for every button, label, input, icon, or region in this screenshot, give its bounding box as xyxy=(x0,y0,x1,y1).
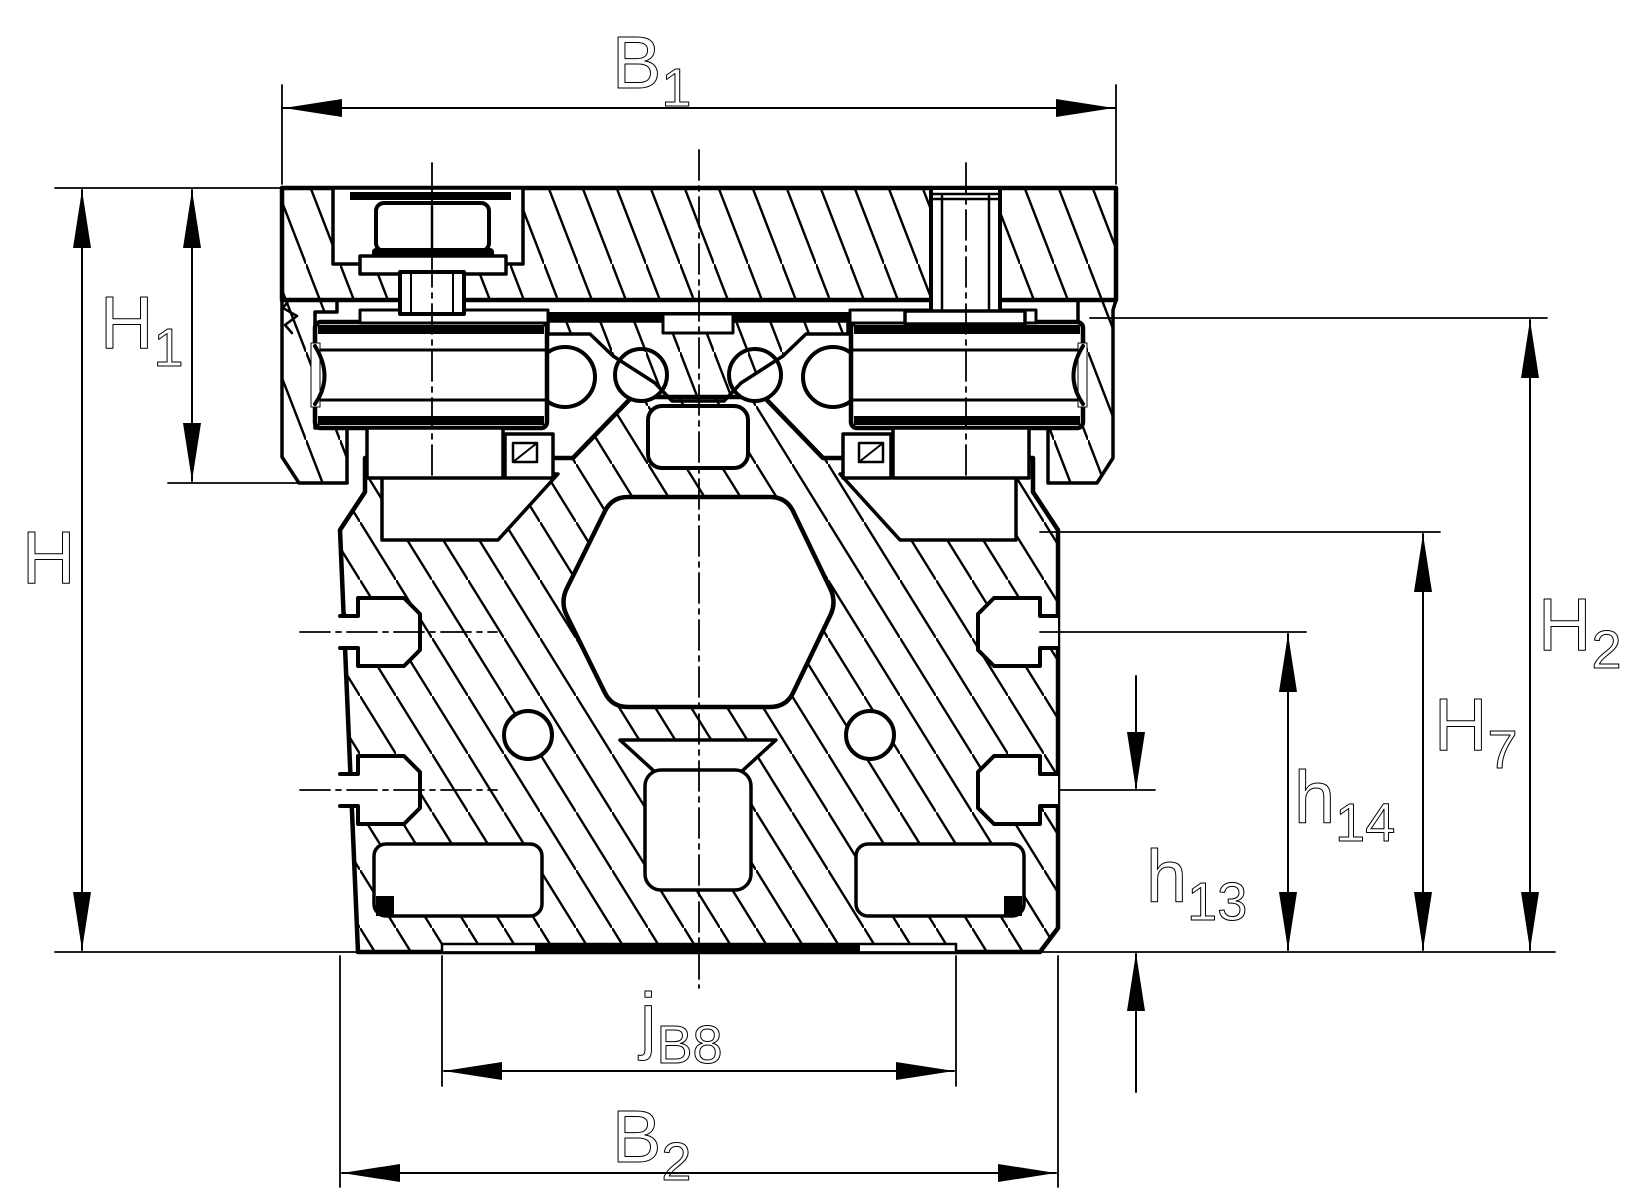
left-foot-slot xyxy=(376,896,394,916)
left-support-block xyxy=(367,428,503,478)
label-h13: h13 xyxy=(1146,835,1247,932)
right-round-bore xyxy=(846,711,894,759)
label-B1: B1 xyxy=(612,21,691,118)
dimension-h13: h13 xyxy=(1060,676,1247,1092)
label-H7: H7 xyxy=(1434,683,1518,780)
bottom-center-cavity xyxy=(645,770,751,890)
platen-center-notch xyxy=(663,314,733,333)
label-B2: B2 xyxy=(612,1095,691,1192)
pocket-washer-bar xyxy=(350,192,511,200)
dimension-H7: H7 xyxy=(1040,532,1518,950)
dimension-H: H xyxy=(22,190,91,950)
technical-drawing: B1 H H1 H2 H7 xyxy=(0,0,1650,1200)
ridge-channel xyxy=(648,406,748,468)
left-foot-cavity xyxy=(374,844,542,916)
label-h14: h14 xyxy=(1294,756,1395,853)
label-H1: H1 xyxy=(100,281,184,378)
right-roller xyxy=(851,322,1087,428)
label-H2: H2 xyxy=(1538,583,1622,680)
right-foot-slot xyxy=(1004,896,1022,916)
left-retainer xyxy=(505,434,553,478)
left-round-bore xyxy=(504,711,552,759)
label-H: H xyxy=(22,516,75,599)
right-retainer xyxy=(843,434,891,478)
drawing-canvas: B1 H H1 H2 H7 xyxy=(0,0,1650,1200)
label-jB8: jB8 xyxy=(638,978,723,1075)
right-foot-cavity xyxy=(856,844,1024,916)
bottom-contact-pad xyxy=(535,943,860,952)
left-roller xyxy=(311,322,547,428)
stud-washer xyxy=(905,311,1025,324)
right-support-block xyxy=(893,428,1029,478)
